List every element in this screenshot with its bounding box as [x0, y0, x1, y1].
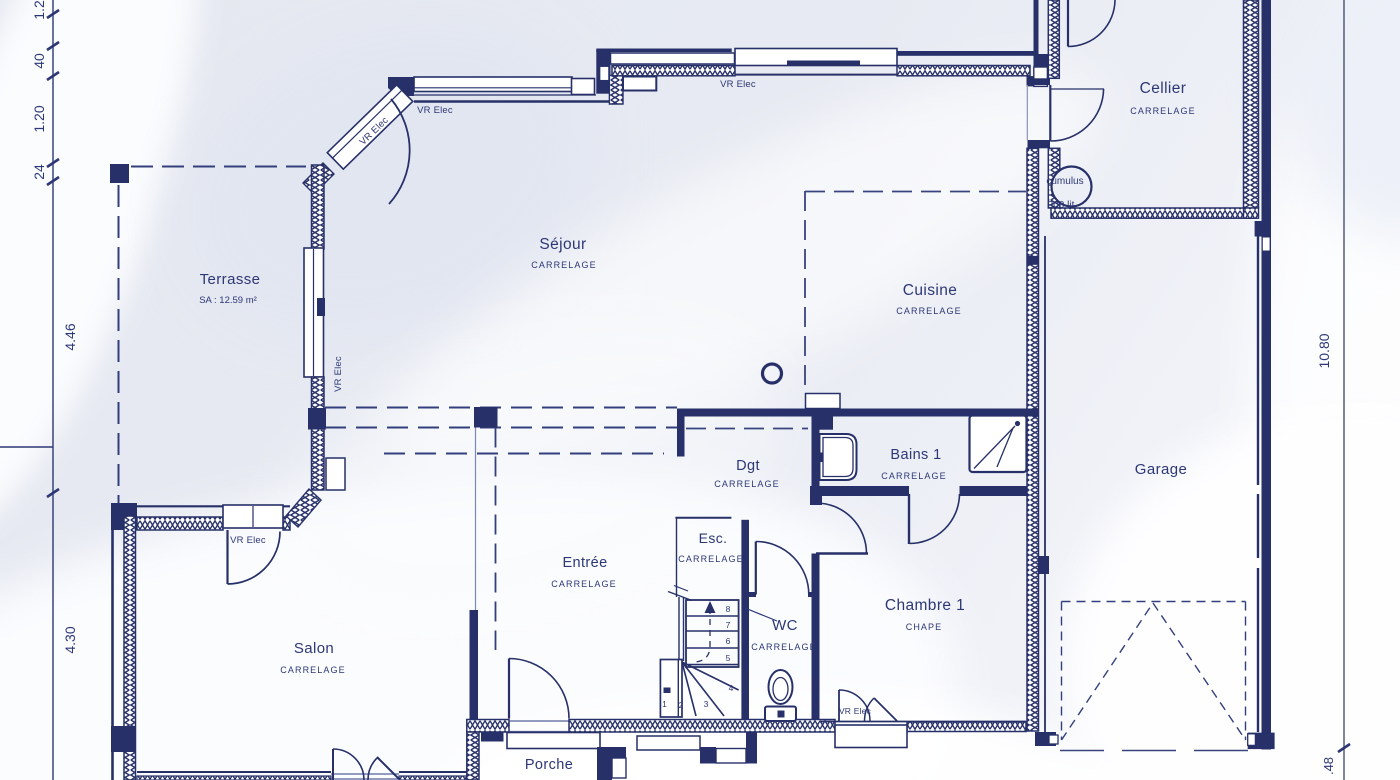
svg-text:4: 4 — [729, 683, 734, 693]
svg-text:Cuisine: Cuisine — [903, 282, 958, 299]
svg-text:CARRELAGE: CARRELAGE — [881, 471, 946, 481]
svg-text:Dgt: Dgt — [736, 458, 760, 474]
svg-text:4.46: 4.46 — [62, 323, 78, 350]
svg-text:SA : 12.59 m²: SA : 12.59 m² — [199, 295, 257, 306]
svg-text:5: 5 — [726, 653, 731, 663]
svg-text:Salon: Salon — [294, 640, 334, 657]
svg-text:Séjour: Séjour — [539, 236, 586, 253]
svg-text:10.80: 10.80 — [1316, 333, 1332, 368]
svg-text:.48: .48 — [1321, 757, 1336, 775]
svg-text:40: 40 — [31, 53, 47, 69]
svg-text:1.20: 1.20 — [31, 105, 47, 132]
svg-text:VR Elec: VR Elec — [720, 79, 756, 90]
svg-text:VR Elec: VR Elec — [839, 706, 872, 716]
svg-text:1: 1 — [662, 699, 667, 709]
svg-text:3: 3 — [704, 699, 709, 709]
svg-text:VR Elec: VR Elec — [417, 105, 453, 116]
svg-text:CARRELAGE: CARRELAGE — [751, 642, 816, 652]
svg-text:2: 2 — [679, 700, 684, 710]
svg-text:1.2: 1.2 — [31, 0, 47, 20]
svg-text:CARRELAGE: CARRELAGE — [531, 260, 596, 270]
svg-text:24: 24 — [31, 164, 47, 180]
svg-text:VR Elec: VR Elec — [333, 356, 344, 392]
svg-text:Chambre 1: Chambre 1 — [885, 597, 965, 614]
svg-text:Entrée: Entrée — [562, 555, 607, 571]
svg-text:CARRELAGE: CARRELAGE — [1130, 106, 1195, 116]
svg-text:4.30: 4.30 — [62, 626, 78, 653]
svg-text:CARRELAGE: CARRELAGE — [551, 579, 616, 589]
svg-text:CHAPE: CHAPE — [906, 622, 943, 632]
svg-text:cumulus: cumulus — [1046, 176, 1083, 187]
svg-text:Porche: Porche — [525, 757, 573, 773]
svg-text:CARRELAGE: CARRELAGE — [280, 665, 345, 675]
svg-text:CARRELAGE: CARRELAGE — [678, 554, 743, 564]
svg-text:CARRELAGE: CARRELAGE — [896, 306, 961, 316]
svg-text:Bains 1: Bains 1 — [890, 447, 941, 463]
svg-text:VR Elec: VR Elec — [230, 535, 266, 546]
svg-text:7: 7 — [726, 620, 731, 630]
svg-text:8: 8 — [726, 604, 731, 614]
svg-text:Terrasse: Terrasse — [200, 271, 261, 288]
svg-text:WC: WC — [772, 617, 798, 634]
svg-text:6: 6 — [726, 636, 731, 646]
svg-text:Garage: Garage — [1135, 461, 1187, 478]
svg-text:Esc.: Esc. — [699, 530, 728, 546]
svg-text:CARRELAGE: CARRELAGE — [714, 479, 779, 489]
svg-text:Cellier: Cellier — [1140, 80, 1187, 97]
